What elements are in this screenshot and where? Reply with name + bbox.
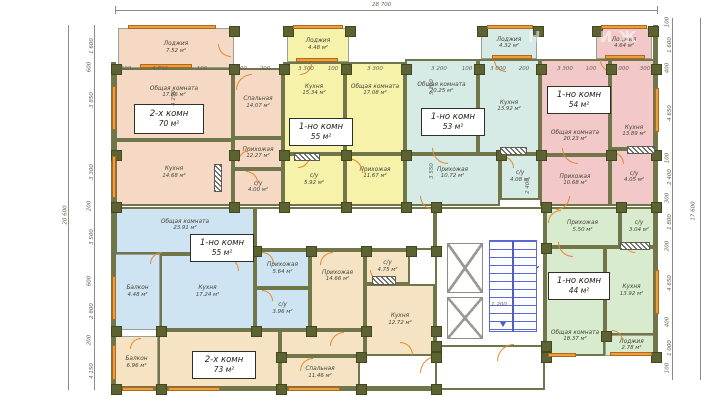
- dimension-chain-left: [94, 25, 95, 390]
- dimension-label: 200: [664, 241, 670, 252]
- dimension-label: 200: [86, 201, 92, 212]
- elevator-shaft: [447, 297, 483, 339]
- stair-arrow-icon: [500, 322, 506, 330]
- room-area-label: 14.66 м²: [326, 277, 349, 283]
- column-marker: [541, 341, 552, 352]
- column-marker: [616, 202, 627, 213]
- column-marker: [648, 26, 659, 37]
- dimension-label: 100: [455, 66, 479, 72]
- dimension-label: 100: [321, 66, 345, 72]
- dimension-label: 100: [190, 66, 214, 72]
- column-marker: [401, 202, 412, 213]
- dimension-label: 100: [664, 363, 670, 374]
- room-area-label: 5.92 м²: [304, 181, 324, 187]
- column-marker: [401, 150, 412, 161]
- column-marker: [356, 384, 367, 395]
- dimension-tick: [115, 6, 116, 14]
- room-filler: [280, 330, 365, 356]
- dimension-label: 1 000: [667, 340, 673, 356]
- apartment-type-badge: 1-но комн53 м²: [421, 108, 485, 136]
- room-kitchen: Кухня17.24 м²: [160, 254, 255, 330]
- room-area-label: 4.32 м²: [499, 44, 519, 50]
- room-living: Общая комната20.25 м²: [405, 59, 478, 154]
- column-marker: [306, 326, 317, 337]
- window-marker: [288, 387, 340, 391]
- room-loggia: Лоджия7.52 м²: [118, 28, 234, 68]
- dimension-label: 100: [579, 66, 603, 72]
- window-marker: [112, 86, 116, 130]
- room-area-label: 3.04 м²: [629, 228, 649, 234]
- column-marker: [229, 26, 240, 37]
- room-area-label: 11.46 м²: [308, 374, 331, 380]
- room-bedroom: Спальная11.46 м²: [280, 356, 360, 390]
- dimension-label: 600: [114, 66, 138, 72]
- window-marker: [112, 276, 116, 320]
- room-area-label: 5.64 м²: [273, 270, 293, 276]
- apartment-area-label: 55 м²: [212, 249, 233, 257]
- column-marker: [306, 246, 317, 257]
- room-area-label: 10.72 м²: [441, 174, 464, 180]
- apartment-type-badge: 1-но комн54 м²: [547, 86, 611, 114]
- window-marker: [122, 387, 154, 391]
- apartment-type-badge: 2-х комн73 м²: [192, 351, 256, 379]
- dimension-label: 4 250: [171, 86, 177, 110]
- dimension-label: 3 300: [227, 66, 251, 72]
- window-marker: [112, 156, 116, 198]
- vent-shaft: [620, 242, 650, 250]
- dimension-label: 1 600: [667, 37, 673, 53]
- room-area-label: 10.68 м²: [563, 181, 586, 187]
- room-area-label: 12.72 м²: [388, 321, 411, 327]
- dimension-label: 100: [664, 153, 670, 164]
- vent-shaft: [627, 146, 655, 154]
- dimension-label: 400: [664, 317, 670, 328]
- room-living: Общая комната18.37 м²: [545, 247, 605, 356]
- column-marker: [431, 202, 442, 213]
- room-hall: Прихожая14.66 м²: [310, 250, 365, 330]
- dimension-label: 200: [394, 66, 418, 72]
- apartment-area-label: 70 м²: [159, 120, 180, 128]
- dimension-label: 200: [86, 335, 92, 346]
- dimension-label: 4 700: [148, 66, 172, 72]
- dimension-line-right: [700, 18, 701, 380]
- staircase: [489, 240, 537, 332]
- column-marker: [431, 352, 442, 363]
- room-area-label: 14.07 м²: [246, 104, 269, 110]
- total-height-left-label: 20 600: [63, 205, 69, 224]
- room-area-label: 3.96 м²: [273, 310, 293, 316]
- column-marker: [341, 202, 352, 213]
- apartment-area-label: 53 м²: [443, 123, 464, 131]
- column-marker: [156, 384, 167, 395]
- dimension-label: 3 300: [553, 66, 577, 72]
- dimension-label: 600: [86, 276, 92, 287]
- room-living: Общая комната17.08 м²: [345, 62, 405, 154]
- column-marker: [406, 246, 417, 257]
- column-marker: [156, 326, 167, 337]
- apartment-type-badge: 1-но комн55 м²: [289, 118, 353, 146]
- column-marker: [111, 202, 122, 213]
- window-marker: [112, 345, 116, 380]
- room-wc: с/у4.00 м²: [233, 169, 283, 206]
- window-marker: [487, 25, 533, 29]
- total-height-right-label: 17 600: [691, 201, 697, 220]
- column-marker: [276, 352, 287, 363]
- room-area-label: 4.05 м²: [624, 178, 644, 184]
- apartment-type-badge: 2-х комн70 м²: [134, 104, 204, 134]
- corridor: [255, 207, 435, 250]
- dimension-label: 4 150: [89, 363, 95, 379]
- dimension-label: 200: [253, 66, 277, 72]
- room-area-label: 13.92 м²: [497, 107, 520, 113]
- total-width-label: 28 700: [372, 2, 391, 8]
- window-marker: [548, 353, 576, 357]
- column-marker: [279, 202, 290, 213]
- room-wc: с/у5.92 м²: [283, 154, 345, 206]
- elevator-shaft: [447, 243, 483, 293]
- room-area-label: 13.92 м²: [620, 292, 643, 298]
- apartment-area-label: 44 м²: [569, 287, 590, 295]
- apartment-area-label: 73 м²: [214, 366, 235, 374]
- column-marker: [279, 150, 290, 161]
- dimension-tick: [657, 6, 658, 14]
- room-kitchen: Кухня13.92 м²: [478, 59, 540, 154]
- dimension-label: 3 200: [427, 66, 451, 72]
- dimension-label: 4 650: [667, 105, 673, 121]
- dimension-label: 400: [664, 63, 670, 74]
- room-area-label: 13.89 м²: [622, 132, 645, 138]
- dimension-label: 200: [512, 66, 536, 72]
- room-area-label: 17.24 м²: [196, 293, 219, 299]
- room-loggia: Лоджия4.48 м²: [287, 28, 349, 62]
- dimension-label: 3 300: [294, 66, 318, 72]
- window-marker: [655, 270, 659, 314]
- room-area-label: 6.96 м²: [127, 364, 147, 370]
- dimension-label: 300: [664, 193, 670, 204]
- room-area-label: 23.91 м²: [173, 226, 196, 232]
- window-marker: [168, 387, 220, 391]
- vent-shaft: [500, 147, 527, 155]
- dimension-chain-right: [672, 18, 673, 380]
- window-marker: [655, 88, 659, 132]
- dimension-label: 100: [664, 17, 670, 28]
- column-marker: [361, 326, 372, 337]
- column-marker: [431, 326, 442, 337]
- vent-shaft: [372, 276, 396, 285]
- vent-shaft: [294, 153, 320, 161]
- dimension-label: 2 800: [89, 303, 95, 319]
- column-marker: [251, 326, 262, 337]
- room-area-label: 5.50 м²: [573, 228, 593, 234]
- room-area-label: 7.52 м²: [166, 49, 186, 55]
- room-area-label: 4.48 м²: [308, 46, 328, 52]
- column-marker: [601, 331, 612, 342]
- window-marker: [492, 55, 532, 59]
- dimension-label: 1 800: [667, 214, 673, 230]
- window-marker: [128, 25, 216, 29]
- room-area-label: 18.37 м²: [563, 337, 586, 343]
- column-marker: [279, 64, 290, 75]
- room-area-label: 15.34 м²: [302, 91, 325, 97]
- entrance-hall: [435, 345, 545, 390]
- column-marker: [345, 26, 356, 37]
- window-marker: [610, 352, 652, 356]
- apartment-area-label: 55 м²: [311, 133, 332, 141]
- column-marker: [361, 246, 372, 257]
- column-marker: [111, 326, 122, 337]
- column-marker: [536, 150, 547, 161]
- dimension-label: 4 650: [667, 275, 673, 291]
- dimension-label: 600: [86, 62, 92, 73]
- column-marker: [606, 150, 617, 161]
- dimension-label: 300: [633, 66, 657, 72]
- room-area-label: 4.00 м²: [248, 188, 268, 194]
- column-marker: [431, 246, 442, 257]
- column-marker: [276, 384, 287, 395]
- floor-plan: 28 700 20 600 17 600 НЕДВИЖ Лоджия7.52 м…: [0, 0, 720, 401]
- dimension-label: 3 550: [429, 159, 435, 183]
- column-marker: [431, 341, 442, 352]
- dimension-line-top: [115, 10, 658, 11]
- apartment-type-badge: 1-но комн44 м²: [548, 272, 610, 300]
- dimension-label: 2 400: [667, 169, 673, 185]
- apartment-type-badge: 1-но комн55 м²: [190, 234, 254, 262]
- dimension-label: 2 400: [525, 174, 531, 198]
- dimension-label: 3 000: [486, 66, 510, 72]
- column-marker: [229, 202, 240, 213]
- column-marker: [341, 150, 352, 161]
- watermark: НЕДВИЖ: [528, 28, 643, 46]
- column-marker: [356, 352, 367, 363]
- dimension-label: 3 300: [89, 164, 95, 180]
- column-marker: [536, 64, 547, 75]
- column-marker: [431, 384, 442, 395]
- dimension-label: 5 300: [429, 75, 435, 99]
- dimension-label: 3 500: [89, 229, 95, 245]
- column-marker: [651, 202, 662, 213]
- room-area-label: 20.23 м²: [563, 137, 586, 143]
- dimension-label: 1 200: [487, 302, 511, 308]
- window-marker: [296, 58, 338, 62]
- dimension-label: 3 000: [609, 66, 633, 72]
- window-marker: [293, 25, 343, 29]
- column-marker: [651, 352, 662, 363]
- stair-divider: [512, 241, 514, 331]
- room-balcony: Балкон4.48 м²: [115, 254, 160, 330]
- dimension-label: 1 600: [89, 38, 95, 54]
- room-area-label: 4.48 м²: [128, 293, 148, 299]
- room-kitchen: Кухня13.92 м²: [605, 247, 658, 335]
- column-marker: [229, 150, 240, 161]
- room-area-label: 14.68 м²: [162, 174, 185, 180]
- column-marker: [541, 243, 552, 254]
- column-marker: [541, 202, 552, 213]
- vent-shaft: [214, 164, 222, 192]
- column-marker: [111, 384, 122, 395]
- dimension-label: 3 300: [363, 66, 387, 72]
- room-area-label: 11.67 м²: [363, 174, 386, 180]
- apartment-area-label: 54 м²: [569, 101, 590, 109]
- window-marker: [605, 55, 645, 59]
- dimension-label: 3 850: [89, 92, 95, 108]
- room-area-label: 17.08 м²: [363, 91, 386, 97]
